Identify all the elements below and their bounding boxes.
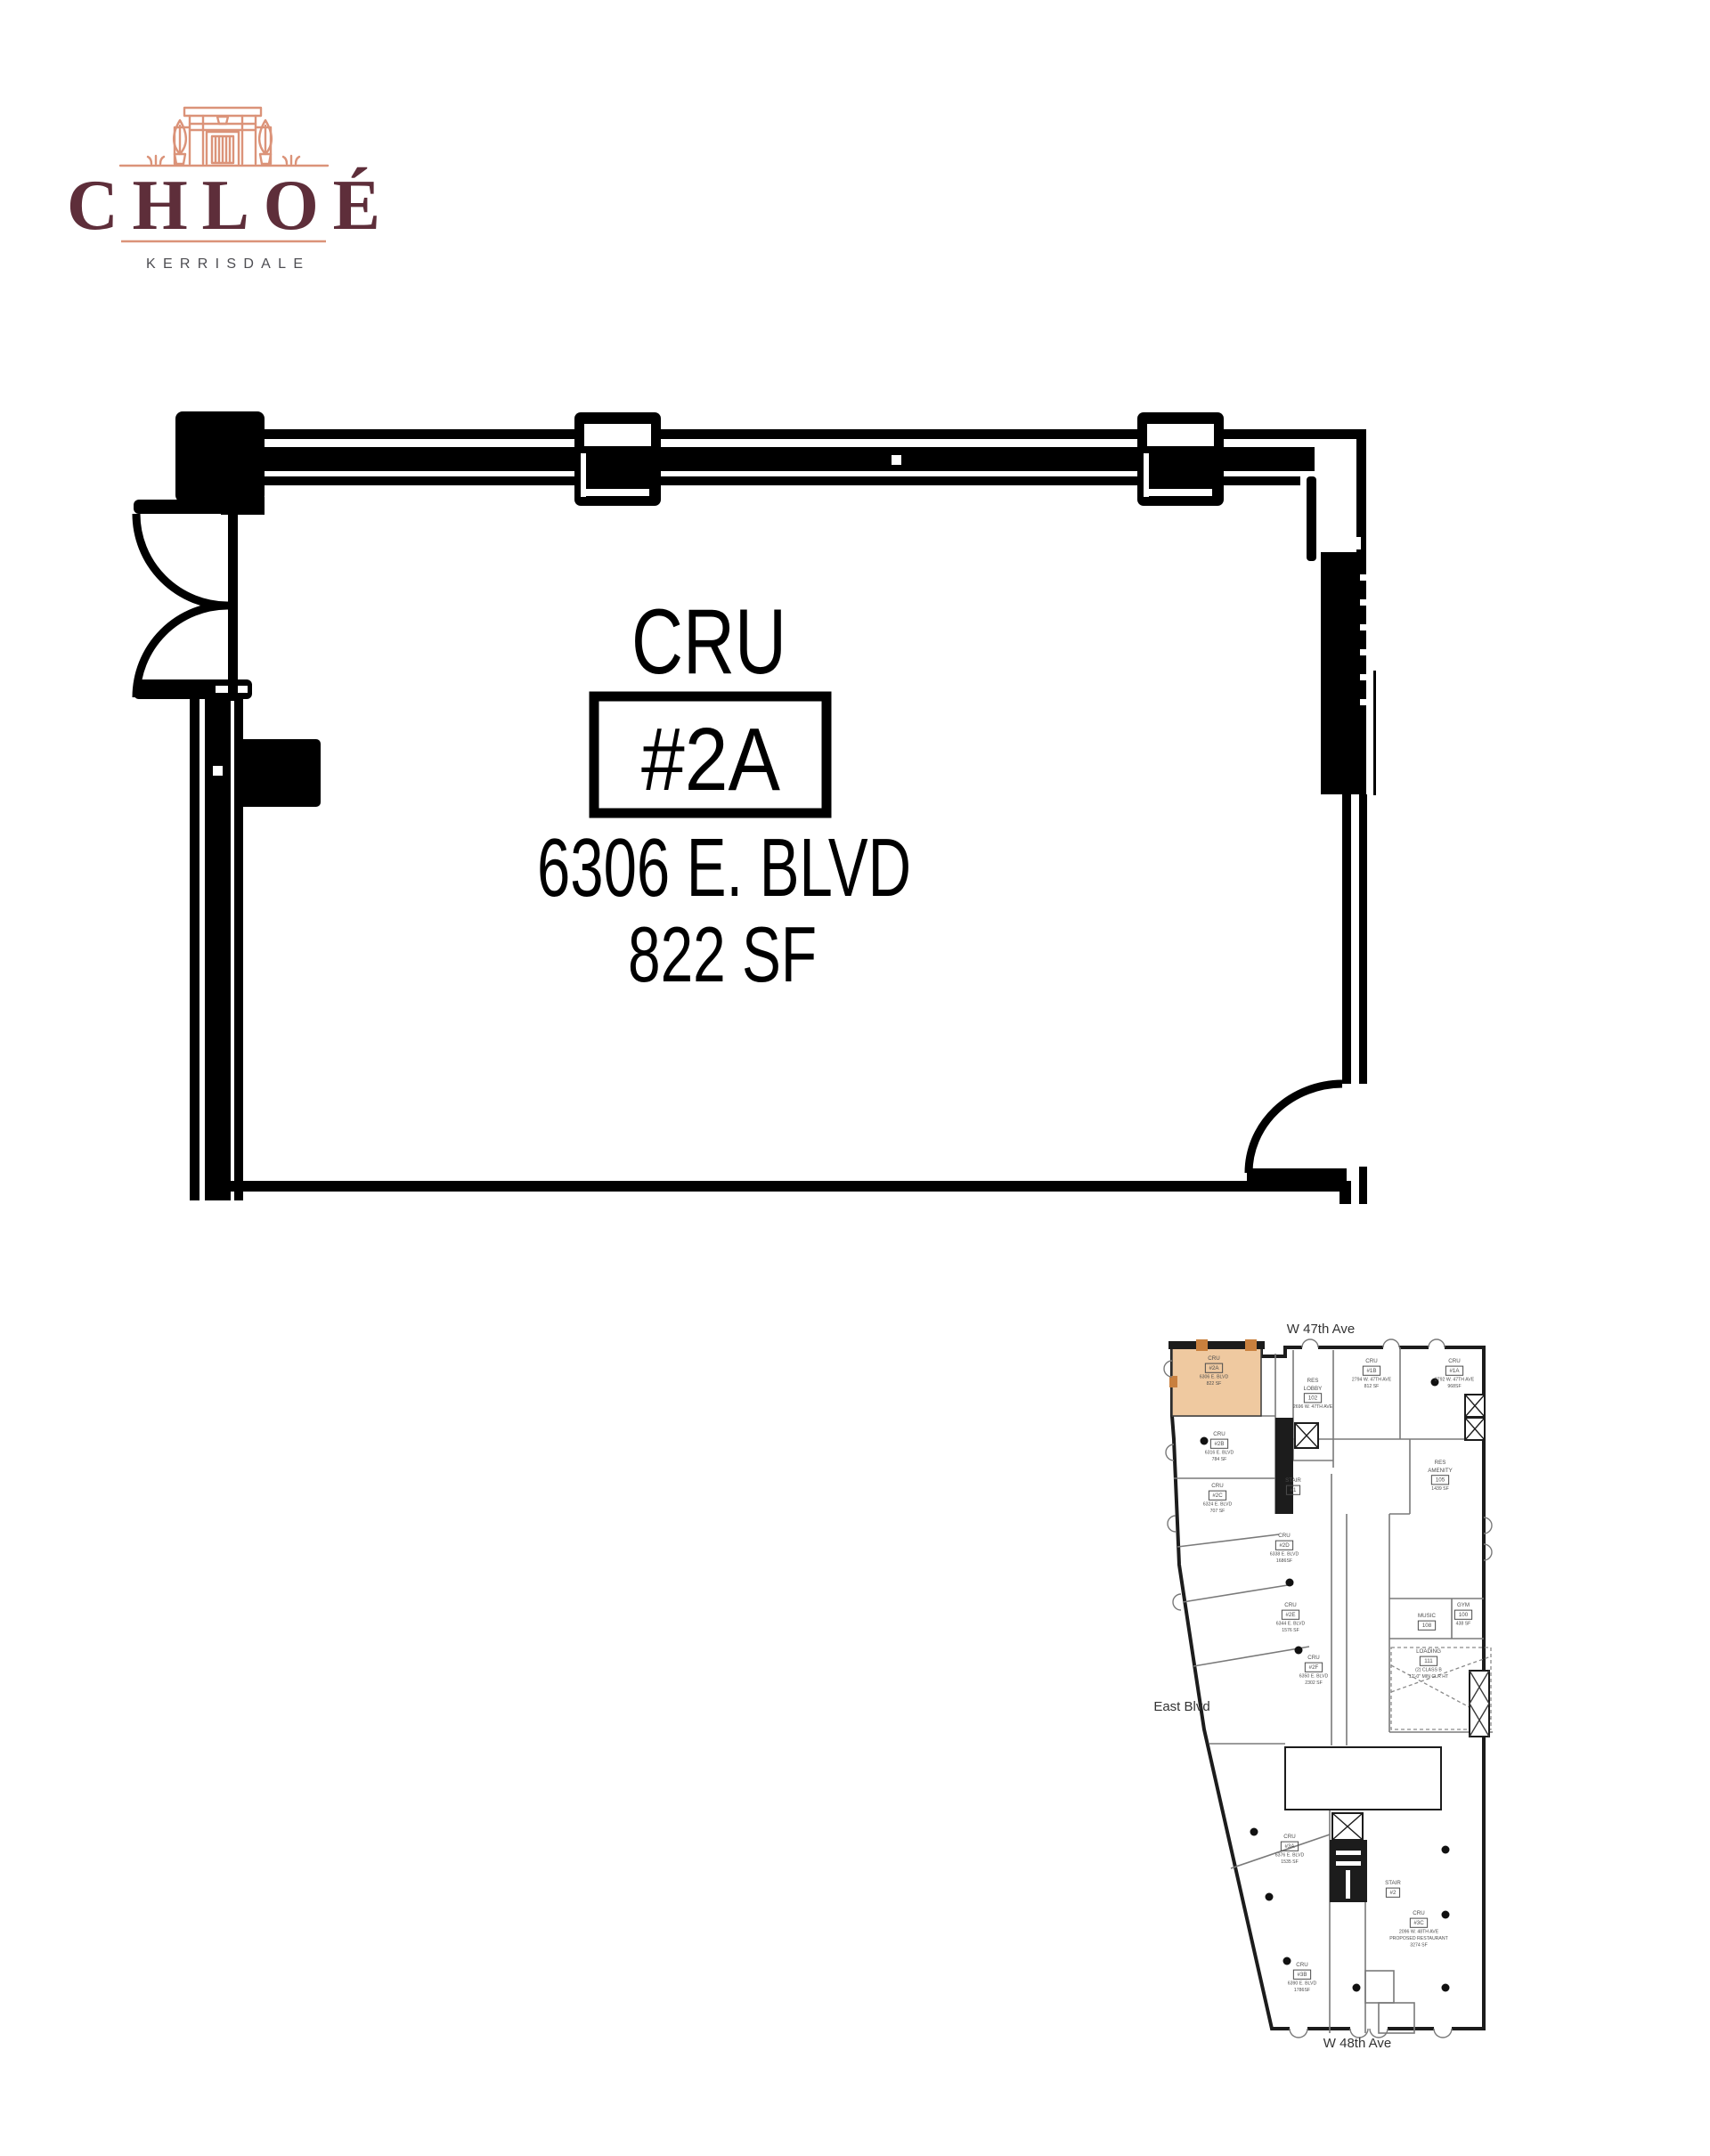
svg-text:CRU: CRU [1278,1533,1290,1539]
svg-text:105: 105 [1436,1477,1445,1483]
svg-text:6350 E. BLVD: 6350 E. BLVD [1299,1673,1329,1679]
svg-text:#1A: #1A [1449,1368,1460,1374]
svg-text:1576 SF: 1576 SF [1282,1628,1299,1633]
svg-text:#2B: #2B [1214,1441,1224,1447]
svg-text:6338 E. BLVD: 6338 E. BLVD [1270,1551,1299,1557]
svg-text:#2E: #2E [1285,1612,1295,1618]
svg-text:RES: RES [1435,1460,1446,1466]
svg-text:GYM: GYM [1457,1602,1470,1608]
brand-name: CHLOÉ [67,167,380,245]
svg-text:102: 102 [1308,1395,1318,1401]
svg-text:2096 W. 48TH AVE: 2096 W. 48TH AVE [1399,1929,1439,1934]
gate-illustration-icon [120,108,328,166]
unit-floor-plan: CRU #2A 6306 E. BLVD 822 SF [134,411,1376,1204]
svg-text:CRU: CRU [1284,1602,1296,1608]
svg-text:6306 E. BLVD: 6306 E. BLVD [1200,1374,1229,1379]
svg-text:12'-0" MIN CLR HT: 12'-0" MIN CLR HT [1409,1674,1449,1680]
svg-text:6390 E. BLVD: 6390 E. BLVD [1288,1981,1317,1986]
svg-text:#2F: #2F [1309,1664,1319,1671]
door-swing-arc-left-upper [136,514,228,606]
svg-text:CRU: CRU [1211,1483,1223,1489]
svg-text:2302 SF: 2302 SF [1305,1680,1323,1686]
svg-text:100: 100 [1459,1612,1469,1618]
svg-text:707 SF: 707 SF [1210,1509,1225,1514]
svg-text:111: 111 [1424,1658,1433,1664]
svg-text:#3C: #3C [1413,1920,1424,1926]
svg-text:(2) CLASS B: (2) CLASS B [1415,1667,1442,1672]
key-plan: W 47th Ave East Blvd W 48th Ave CRU#2A63… [1153,1322,1493,2051]
svg-text:6376 E. BLVD: 6376 E. BLVD [1275,1852,1305,1858]
svg-text:812 SF: 812 SF [1364,1384,1380,1389]
door-swing-arc-right [1249,1084,1342,1173]
svg-text:6316 E. BLVD: 6316 E. BLVD [1205,1450,1234,1455]
plan-canvas: CHLOÉ KERRISDALE [0,0,1710,2156]
svg-text:#1: #1 [1291,1487,1297,1493]
svg-text:968SF: 968SF [1447,1384,1461,1389]
street-label-w48th: W 48th Ave [1323,2036,1391,2051]
svg-text:#1B: #1B [1366,1368,1376,1374]
brand-logo: CHLOÉ KERRISDALE [67,108,380,272]
svg-text:108: 108 [1422,1623,1432,1629]
svg-text:#3B: #3B [1297,1972,1307,1978]
keyplan-parkade-ramp [1285,1747,1441,1810]
svg-text:LOADING: LOADING [1416,1648,1441,1655]
svg-text:438 SF: 438 SF [1456,1621,1471,1626]
unit-type-label: CRU [631,590,786,694]
unit-address: 6306 E. BLVD [537,821,911,914]
svg-text:#2A: #2A [1209,1365,1219,1371]
svg-text:#2C: #2C [1212,1493,1223,1499]
unit-info: CRU #2A 6306 E. BLVD 822 SF [537,590,911,998]
brand-subtitle: KERRISDALE [146,256,303,272]
unit-area: 822 SF [628,910,817,998]
svg-text:1686SF: 1686SF [1276,1558,1292,1564]
svg-text:6344 E. BLVD: 6344 E. BLVD [1276,1621,1306,1626]
svg-text:STAIR: STAIR [1385,1880,1401,1886]
street-label-east-blvd: East Blvd [1153,1699,1209,1714]
svg-text:CRU: CRU [1365,1358,1377,1364]
svg-text:2696 W. 47TH AVE: 2696 W. 47TH AVE [1293,1404,1333,1410]
svg-text:2794 W. 47TH AVE: 2794 W. 47TH AVE [1352,1377,1392,1382]
svg-text:AMENITY: AMENITY [1428,1468,1453,1474]
svg-text:CRU: CRU [1413,1910,1424,1916]
svg-text:6324 E. BLVD: 6324 E. BLVD [1203,1501,1233,1507]
svg-text:RES: RES [1307,1378,1319,1384]
svg-text:CRU: CRU [1296,1962,1307,1968]
street-label-w47th: W 47th Ave [1287,1322,1355,1337]
floor-plan-sheet: CHLOÉ KERRISDALE [0,0,1710,2156]
svg-text:LOBBY: LOBBY [1304,1386,1323,1392]
svg-text:3274 SF: 3274 SF [1410,1943,1428,1949]
svg-text:#2D: #2D [1279,1542,1290,1549]
svg-text:PROPOSED RESTAURANT: PROPOSED RESTAURANT [1389,1936,1448,1941]
svg-text:1439 SF: 1439 SF [1431,1486,1449,1492]
svg-text:CRU: CRU [1283,1834,1295,1840]
svg-text:#2: #2 [1390,1890,1396,1896]
svg-text:1535 SF: 1535 SF [1281,1859,1299,1865]
svg-text:CRU: CRU [1448,1358,1460,1364]
svg-text:STAIR: STAIR [1285,1477,1301,1484]
svg-text:MUSIC: MUSIC [1418,1613,1436,1619]
svg-text:CRU: CRU [1208,1355,1219,1362]
svg-text:1786SF: 1786SF [1294,1988,1310,1993]
wall-pilaster-box [237,739,321,807]
svg-text:#3A: #3A [1284,1843,1295,1850]
svg-text:822 SF: 822 SF [1207,1381,1222,1387]
svg-text:784 SF: 784 SF [1212,1457,1227,1462]
svg-text:CRU: CRU [1213,1431,1225,1437]
svg-text:CRU: CRU [1307,1655,1319,1661]
unit-number: #2A [641,710,780,810]
svg-text:2792 W. 47TH AVE: 2792 W. 47TH AVE [1435,1377,1475,1382]
